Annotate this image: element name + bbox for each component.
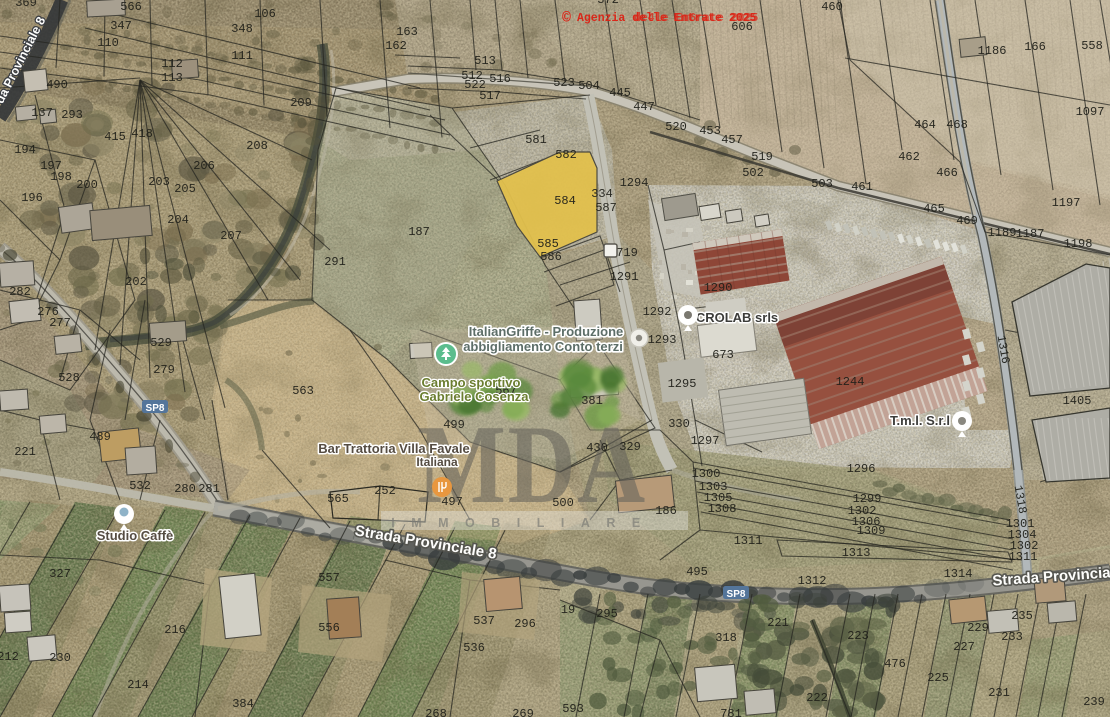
svg-text:586: 586 (540, 250, 562, 264)
svg-text:206: 206 (193, 159, 215, 173)
svg-text:222: 222 (806, 691, 828, 705)
svg-text:208: 208 (246, 139, 268, 153)
svg-text:1296: 1296 (847, 462, 876, 476)
svg-text:490: 490 (46, 78, 68, 92)
svg-text:113: 113 (161, 71, 183, 85)
svg-text:296: 296 (514, 617, 536, 631)
svg-text:348: 348 (231, 22, 253, 36)
svg-text:235: 235 (1011, 609, 1033, 623)
svg-text:502: 502 (742, 166, 764, 180)
svg-text:abbigliamento Conto terzi: abbigliamento Conto terzi (463, 339, 623, 354)
svg-text:SP8: SP8 (146, 403, 165, 414)
svg-text:1244: 1244 (836, 375, 865, 389)
svg-text:1097: 1097 (1076, 105, 1105, 119)
svg-text:221: 221 (14, 445, 36, 459)
svg-text:Campo sportivo: Campo sportivo (422, 375, 521, 390)
svg-text:453: 453 (699, 124, 721, 138)
svg-text:523: 523 (553, 76, 575, 90)
svg-text:279: 279 (153, 363, 175, 377)
svg-text:537: 537 (473, 614, 495, 628)
svg-text:216: 216 (164, 623, 186, 637)
svg-text:781: 781 (720, 707, 742, 717)
svg-text:1187: 1187 (1016, 227, 1045, 241)
svg-text:IMMOBILIARE: IMMOBILIARE (391, 516, 657, 530)
svg-text:202: 202 (125, 275, 147, 289)
svg-text:418: 418 (131, 127, 153, 141)
svg-text:166: 166 (1024, 40, 1046, 54)
svg-text:500: 500 (552, 496, 574, 510)
svg-text:462: 462 (898, 150, 920, 164)
svg-text:504: 504 (578, 79, 600, 93)
svg-text:489: 489 (89, 430, 111, 444)
svg-text:334: 334 (591, 187, 613, 201)
svg-text:Italiana: Italiana (416, 455, 458, 469)
svg-text:582: 582 (555, 148, 577, 162)
svg-text:239: 239 (1083, 695, 1105, 709)
svg-text:Gabriele Cosenza: Gabriele Cosenza (419, 389, 529, 404)
svg-text:163: 163 (396, 25, 418, 39)
svg-text:1291: 1291 (610, 270, 639, 284)
svg-text:1295: 1295 (668, 377, 697, 391)
svg-text:Bar Trattoria Villa Favale: Bar Trattoria Villa Favale (318, 441, 470, 456)
svg-text:466: 466 (936, 166, 958, 180)
svg-text:252: 252 (374, 484, 396, 498)
svg-text:461: 461 (851, 180, 873, 194)
svg-text:719: 719 (616, 246, 638, 260)
svg-text:de4le En6rate 2025: de4le En6rate 2025 (634, 12, 758, 25)
svg-text:291: 291 (324, 255, 346, 269)
svg-text:497: 497 (441, 495, 463, 509)
svg-text:565: 565 (327, 492, 349, 506)
svg-text:1311: 1311 (734, 534, 763, 548)
svg-text:1189: 1189 (988, 226, 1017, 240)
svg-text:233: 233 (1001, 630, 1023, 644)
svg-text:110: 110 (97, 36, 119, 50)
svg-text:1198: 1198 (1064, 237, 1093, 251)
svg-text:112: 112 (161, 57, 183, 71)
svg-text:587: 587 (595, 201, 617, 215)
svg-text:464: 464 (914, 118, 936, 132)
svg-text:381: 381 (581, 394, 603, 408)
svg-text:1405: 1405 (1063, 394, 1092, 408)
svg-text:295: 295 (596, 607, 618, 621)
svg-text:205: 205 (174, 182, 196, 196)
svg-text:223: 223 (847, 629, 869, 643)
svg-text:517: 517 (479, 89, 501, 103)
svg-text:214: 214 (127, 678, 149, 692)
svg-text:196: 196 (21, 191, 43, 205)
svg-text:268: 268 (425, 707, 447, 717)
svg-text:©: © (562, 10, 571, 27)
svg-text:207: 207 (220, 229, 242, 243)
svg-text:556: 556 (318, 621, 340, 635)
svg-text:1314: 1314 (944, 567, 973, 581)
svg-text:476: 476 (884, 657, 906, 671)
svg-text:516: 516 (489, 72, 511, 86)
svg-text:CROLAB srls: CROLAB srls (696, 310, 778, 325)
svg-text:563: 563 (292, 384, 314, 398)
svg-text:203: 203 (148, 175, 170, 189)
svg-text:221: 221 (767, 616, 789, 630)
svg-text:584: 584 (554, 194, 576, 208)
svg-text:227: 227 (953, 640, 975, 654)
svg-text:1313: 1313 (842, 546, 871, 560)
svg-text:430: 430 (586, 441, 608, 455)
svg-text:1290: 1290 (704, 281, 733, 295)
svg-text:327: 327 (49, 567, 71, 581)
svg-text:200: 200 (76, 178, 98, 192)
svg-text:585: 585 (537, 237, 559, 251)
svg-text:Studio Caffè: Studio Caffè (97, 528, 174, 543)
svg-text:SP8: SP8 (727, 589, 746, 600)
svg-text:231: 231 (988, 686, 1010, 700)
svg-text:1312: 1312 (798, 574, 827, 588)
svg-text:187: 187 (408, 225, 430, 239)
svg-text:347: 347 (110, 19, 132, 33)
svg-text:495: 495 (686, 565, 708, 579)
svg-text:415: 415 (104, 130, 126, 144)
svg-text:1292: 1292 (643, 305, 672, 319)
svg-text:230: 230 (49, 651, 71, 665)
svg-text:204: 204 (167, 213, 189, 227)
svg-text:468: 468 (946, 118, 968, 132)
svg-text:1294: 1294 (620, 176, 649, 190)
svg-text:460: 460 (821, 0, 843, 14)
svg-text:137: 137 (31, 106, 53, 120)
svg-text:447: 447 (633, 100, 655, 114)
svg-text:106: 106 (254, 7, 276, 21)
svg-text:457: 457 (721, 133, 743, 147)
svg-text:384: 384 (232, 697, 254, 711)
svg-text:1293: 1293 (648, 333, 677, 347)
svg-text:503: 503 (811, 177, 833, 191)
svg-text:194: 194 (14, 143, 36, 157)
svg-text:465: 465 (923, 202, 945, 216)
svg-text:1311: 1311 (1009, 550, 1038, 564)
svg-text:162: 162 (385, 39, 407, 53)
svg-text:520: 520 (665, 120, 687, 134)
svg-text:1297: 1297 (691, 434, 720, 448)
svg-text:212: 212 (0, 650, 19, 664)
svg-text:557: 557 (318, 571, 340, 585)
svg-text:1300: 1300 (692, 467, 721, 481)
svg-text:282: 282 (9, 285, 31, 299)
svg-text:225: 225 (927, 671, 949, 685)
svg-text:513: 513 (474, 54, 496, 68)
svg-text:369: 369 (15, 0, 37, 10)
svg-text:293: 293 (61, 108, 83, 122)
svg-text:566: 566 (120, 0, 142, 14)
svg-text:499: 499 (443, 418, 465, 432)
svg-text:111: 111 (231, 49, 253, 63)
svg-text:1197: 1197 (1052, 196, 1081, 210)
svg-text:269: 269 (512, 707, 534, 717)
svg-text:1186: 1186 (978, 44, 1007, 58)
svg-text:536: 536 (463, 641, 485, 655)
svg-text:280: 280 (174, 482, 196, 496)
svg-text:529: 529 (150, 336, 172, 350)
svg-text:445: 445 (609, 86, 631, 100)
svg-text:372: 372 (597, 0, 619, 7)
svg-text:T.m.l. S.r.l: T.m.l. S.r.l (890, 413, 950, 428)
svg-text:19: 19 (561, 603, 575, 617)
svg-text:593: 593 (562, 702, 584, 716)
svg-text:ItalianGriffe - Produzione: ItalianGriffe - Produzione (469, 324, 624, 339)
svg-text:209: 209 (290, 96, 312, 110)
svg-text:198: 198 (50, 170, 72, 184)
svg-text:329: 329 (619, 440, 641, 454)
svg-text:318: 318 (715, 631, 737, 645)
svg-text:1308: 1308 (708, 502, 737, 516)
svg-text:1309: 1309 (857, 524, 886, 538)
svg-text:281: 281 (198, 482, 220, 496)
svg-text:330: 330 (668, 417, 690, 431)
svg-text:673: 673 (712, 348, 734, 362)
svg-text:558: 558 (1081, 39, 1103, 53)
svg-text:532: 532 (129, 479, 151, 493)
svg-text:277: 277 (49, 316, 71, 330)
svg-text:186: 186 (655, 504, 677, 518)
svg-text:519: 519 (751, 150, 773, 164)
svg-text:229: 229 (967, 621, 989, 635)
svg-text:469: 469 (956, 214, 978, 228)
svg-text:528: 528 (58, 371, 80, 385)
svg-text:581: 581 (525, 133, 547, 147)
